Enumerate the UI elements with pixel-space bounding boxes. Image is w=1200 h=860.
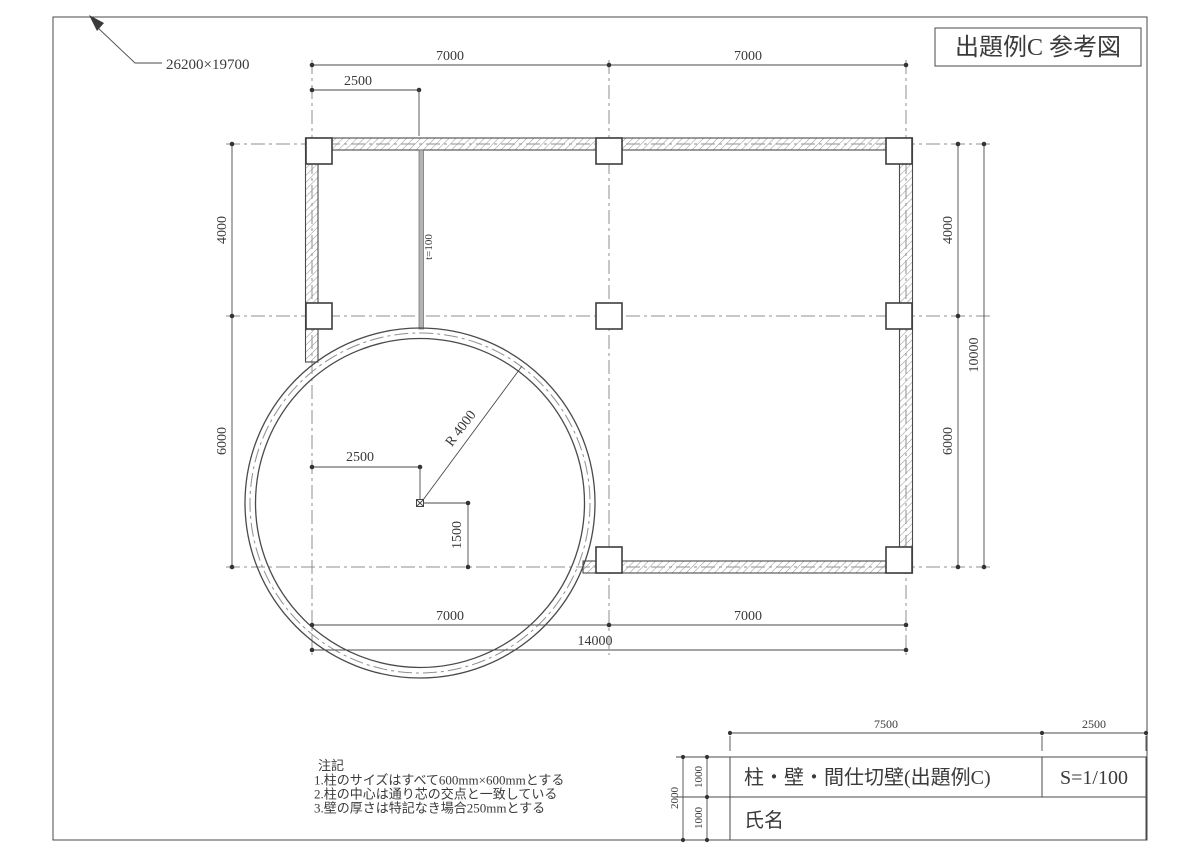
dim-right-lower: 6000 — [941, 427, 956, 455]
notes-line-1: 1.柱のサイズはすべて600mm×600mmとする — [314, 773, 564, 788]
wall-bottom — [583, 561, 913, 573]
dim-titleblock-height-row2: 1000 — [693, 807, 705, 830]
dim-left-lower: 6000 — [215, 427, 230, 455]
dim-dot — [1144, 731, 1148, 735]
column-mid-left — [306, 303, 332, 329]
column-bottom-middle — [596, 547, 622, 573]
dim-titleblock-width-main: 7500 — [874, 717, 898, 731]
dim-dot — [310, 648, 315, 653]
dim-titleblock-height-row1: 1000 — [693, 766, 705, 789]
dim-titleblock-width-scale: 2500 — [1082, 717, 1106, 731]
dim-dot — [904, 648, 909, 653]
name-label: 氏名 — [744, 809, 784, 832]
dim-circle-offset-y: 1500 — [450, 521, 465, 549]
dim-dot — [904, 63, 909, 68]
column-mid-right — [886, 303, 912, 329]
dim-dot — [705, 755, 709, 759]
dim-dot — [607, 63, 612, 68]
column-top-middle — [596, 138, 622, 164]
dim-dot — [230, 142, 235, 147]
dim-top-right-span: 7000 — [734, 49, 762, 64]
sheet-size-label: 26200×19700 — [166, 57, 249, 73]
dim-dot — [230, 565, 235, 570]
column-top-left — [306, 138, 332, 164]
notes-heading: 注記 — [318, 758, 344, 773]
dim-bottom-total: 14000 — [578, 634, 613, 649]
dim-dot — [607, 623, 612, 628]
dim-dot — [310, 623, 315, 628]
title-box-label: 出題例C 参考図 — [955, 34, 1121, 61]
dim-dot — [681, 755, 685, 759]
dim-top-partition-offset: 2500 — [344, 74, 372, 89]
dim-dot — [956, 142, 961, 147]
dim-dot — [230, 314, 235, 319]
wall-right — [900, 138, 913, 573]
dim-left-upper: 4000 — [215, 216, 230, 244]
dim-bottom-left-span: 7000 — [436, 609, 464, 624]
dim-dot — [681, 838, 685, 842]
dim-dot — [310, 465, 315, 470]
dim-right-upper: 4000 — [941, 216, 956, 244]
dim-dot — [728, 731, 732, 735]
notes-line-3: 3.壁の厚さは特記なき場合250mmとする — [314, 801, 545, 816]
circle-center-mark-icon — [417, 500, 424, 507]
dim-dot — [310, 63, 315, 68]
dim-circle-offset-x: 2500 — [346, 450, 374, 465]
dim-dot — [705, 838, 709, 842]
dim-top-left-span: 7000 — [436, 49, 464, 64]
dim-dot — [956, 314, 961, 319]
drawing-scale: S=1/100 — [1060, 767, 1128, 789]
column-bottom-right — [886, 547, 912, 573]
partition-thickness-label: t=100 — [423, 234, 435, 260]
dim-dot — [466, 501, 471, 506]
dim-titleblock-height-total: 2000 — [669, 787, 681, 810]
drawing-title: 柱・壁・間仕切壁(出題例C) — [744, 766, 991, 789]
column-top-right — [886, 138, 912, 164]
column-mid-center — [596, 303, 622, 329]
cad-drawing-canvas: 7000 7000 2500 4000 6000 4000 6000 10000 — [0, 0, 1200, 860]
dim-dot — [310, 88, 315, 93]
dim-bottom-right-span: 7000 — [734, 609, 762, 624]
dim-dot — [982, 565, 987, 570]
dim-dot — [904, 623, 909, 628]
paper-background — [0, 0, 1200, 860]
dim-dot — [956, 565, 961, 570]
dim-right-total: 10000 — [967, 338, 982, 373]
dim-dot — [982, 142, 987, 147]
dim-dot — [1040, 731, 1044, 735]
dim-dot — [705, 795, 709, 799]
dim-dot — [466, 565, 471, 570]
notes-line-2: 2.柱の中心は通り芯の交点と一致している — [314, 787, 557, 802]
